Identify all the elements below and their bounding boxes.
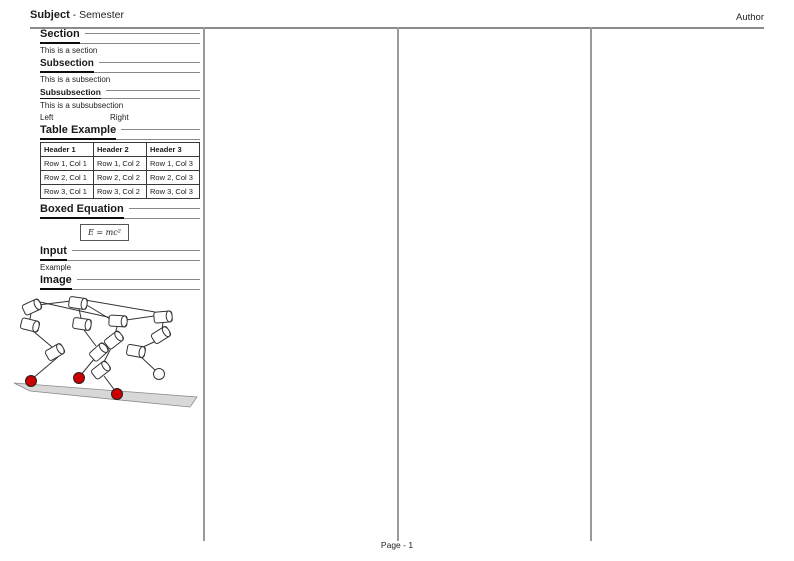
title-rule — [85, 33, 200, 34]
equation-box: E = mc² — [80, 224, 129, 241]
section-body: This is a section — [40, 46, 200, 55]
joint-cylinders — [20, 296, 173, 380]
column-1: Section This is a section Subsection Thi… — [40, 27, 200, 413]
subsubsection-heading: Subsubsection — [40, 87, 200, 99]
table-cell: Row 1, Col 2 — [94, 157, 147, 171]
two-column-row: Left Right — [40, 113, 200, 122]
image-heading: Image — [40, 274, 200, 290]
table-header-cell: Header 2 — [94, 143, 147, 157]
table-header-cell: Header 1 — [41, 143, 94, 157]
document-page: Subject - Semester Author Section This i… — [0, 0, 794, 561]
header-semester: - Semester — [70, 9, 124, 21]
header-author: Author — [736, 12, 764, 23]
title-rule — [72, 250, 200, 251]
table-cell: Row 2, Col 2 — [94, 171, 147, 185]
section-heading: Section — [40, 28, 200, 44]
foot-contact-point — [26, 376, 37, 387]
ground-plane — [14, 383, 197, 407]
title-rule — [77, 279, 200, 280]
column-separator-1 — [203, 27, 205, 541]
table-cell: Row 2, Col 1 — [41, 171, 94, 185]
example-table: Header 1 Header 2 Header 3 Row 1, Col 1 … — [40, 142, 200, 199]
table-row: Row 1, Col 1 Row 1, Col 2 Row 1, Col 3 — [41, 157, 200, 171]
header-title: Subject - Semester — [30, 5, 124, 23]
input-title: Input — [40, 245, 67, 261]
table-row: Row 3, Col 1 Row 3, Col 2 Row 3, Col 3 — [41, 185, 200, 199]
table-cell: Row 3, Col 2 — [94, 185, 147, 199]
table-cell: Row 3, Col 3 — [147, 185, 200, 199]
title-rule — [121, 129, 200, 130]
subsection-heading: Subsection — [40, 58, 200, 73]
table-header-row: Header 1 Header 2 Header 3 — [41, 143, 200, 157]
subsection-title: Subsection — [40, 58, 94, 73]
foot-contact-point — [112, 389, 123, 400]
input-body: Example — [40, 263, 200, 272]
subsection-body: This is a subsection — [40, 75, 200, 84]
subsubsection-title: Subsubsection — [40, 87, 101, 99]
robot-kinematics-figure — [10, 292, 200, 413]
table-header-cell: Header 3 — [147, 143, 200, 157]
table-cell: Row 1, Col 1 — [41, 157, 94, 171]
boxed-equation-title: Boxed Equation — [40, 203, 124, 219]
page-header: Subject - Semester Author — [30, 5, 764, 29]
right-label: Right — [110, 113, 129, 122]
table-row: Row 2, Col 1 Row 2, Col 2 Row 2, Col 3 — [41, 171, 200, 185]
foot-swing-point — [154, 369, 165, 380]
table-cell: Row 3, Col 1 — [41, 185, 94, 199]
title-rule — [129, 208, 200, 209]
section-title: Section — [40, 28, 80, 44]
table-example-title: Table Example — [40, 124, 116, 140]
title-rule — [99, 62, 200, 63]
column-separator-3 — [590, 27, 592, 541]
title-rule — [106, 90, 200, 91]
subsubsection-body: This is a subsubsection — [40, 101, 200, 110]
table-cell: Row 2, Col 3 — [147, 171, 200, 185]
foot-contact-point — [74, 373, 85, 384]
left-label: Left — [40, 113, 110, 122]
table-example-heading: Table Example — [40, 124, 200, 140]
input-heading: Input — [40, 245, 200, 261]
page-number: Page - 1 — [0, 540, 794, 550]
boxed-equation-heading: Boxed Equation — [40, 203, 200, 219]
column-separator-2 — [397, 27, 399, 541]
table-cell: Row 1, Col 3 — [147, 157, 200, 171]
header-subject: Subject — [30, 9, 70, 21]
image-title: Image — [40, 274, 72, 290]
